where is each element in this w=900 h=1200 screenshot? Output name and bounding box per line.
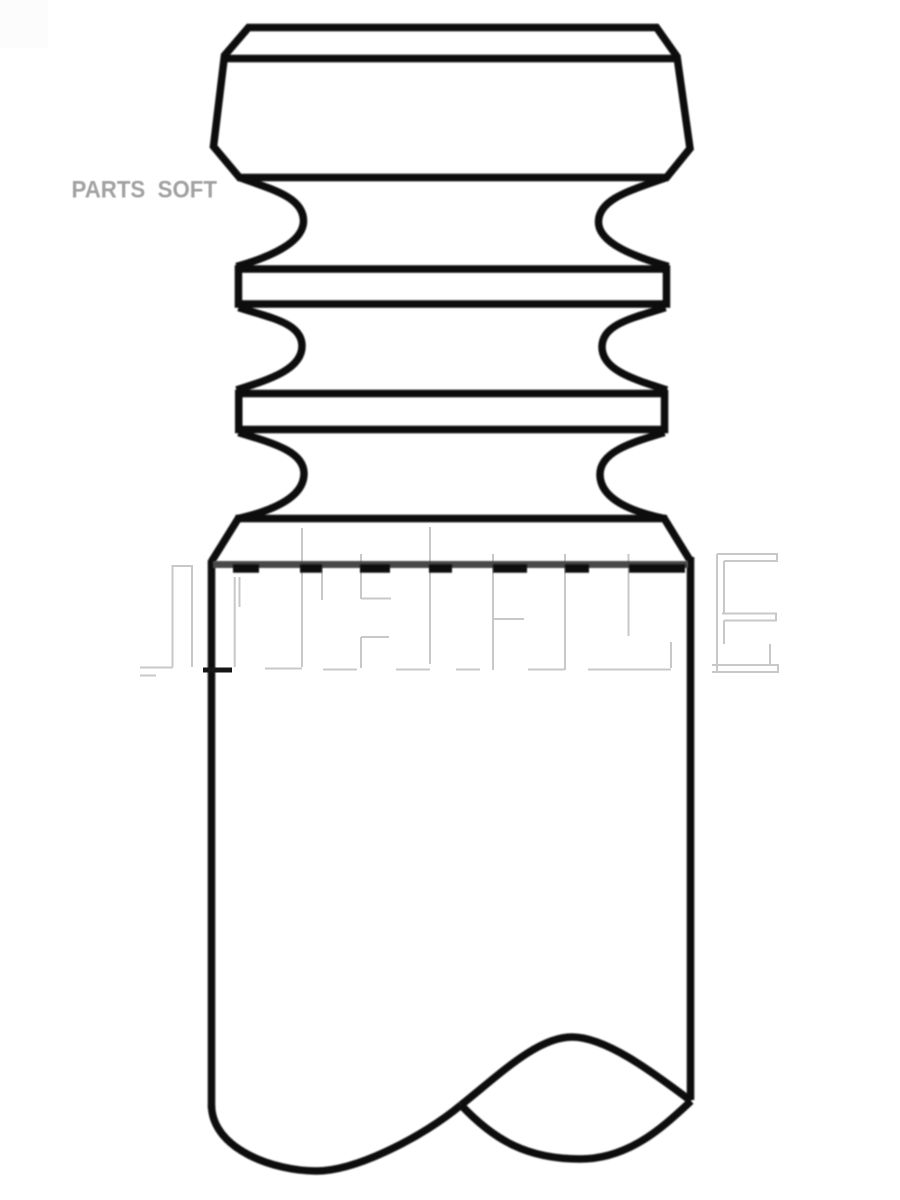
svg-text:PARTS SOFT: PARTS SOFT bbox=[72, 177, 218, 204]
